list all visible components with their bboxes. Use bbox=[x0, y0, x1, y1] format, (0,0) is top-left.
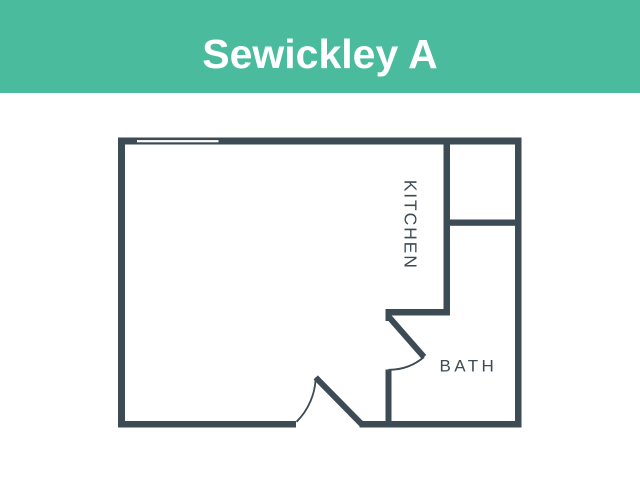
svg-text:KITCHEN: KITCHEN bbox=[401, 180, 421, 270]
svg-text:BATH: BATH bbox=[440, 357, 498, 376]
